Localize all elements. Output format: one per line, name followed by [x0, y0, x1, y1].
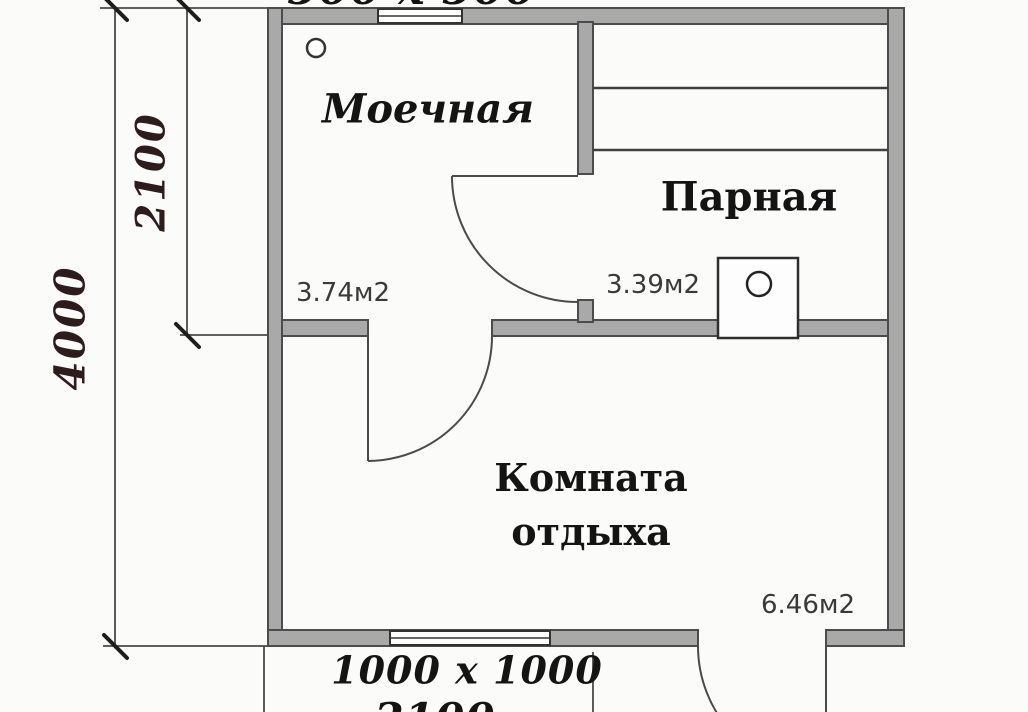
wall-divider-upper: [578, 22, 593, 174]
room-label-rest: Комната отдыха: [494, 451, 688, 559]
floor-plan: 4000 2100 500 х 500 1000 x 1000 2100 Мое…: [0, 0, 1028, 712]
room-label-rest-line1: Комната: [494, 451, 688, 505]
vent-icon: [307, 39, 325, 57]
dimension-label-bottom-width: 2100: [375, 694, 496, 712]
stove-chimney-icon: [747, 272, 771, 296]
area-label-rest: 6.46м2: [761, 590, 855, 620]
wall-right: [888, 8, 904, 646]
door-arc-washing-steam: [452, 176, 578, 302]
wall-interior-horizontal-left: [282, 320, 368, 336]
door-arc-entrance: [698, 646, 826, 712]
room-label-steam: Парная: [661, 174, 837, 221]
dimension-ticks: [104, 0, 199, 658]
dimension-label-2100-left: 2100: [128, 112, 175, 231]
area-label-steam: 3.39м2: [606, 270, 700, 300]
wall-bottom-right-segment: [826, 630, 904, 646]
steam-room-benches: [593, 88, 888, 150]
stove-body: [718, 258, 798, 338]
wall-divider-stub: [578, 300, 593, 322]
room-label-rest-line2: отдыха: [494, 505, 688, 559]
area-label-washing: 3.74м2: [296, 278, 390, 308]
dimension-label-bottom-window: 1000 x 1000: [331, 648, 603, 693]
dimension-label-4000: 4000: [46, 266, 95, 391]
wall-interior-horizontal-right: [492, 320, 888, 336]
dimension-label-top-window: 500 х 500: [287, 0, 537, 15]
room-label-washing: Моечная: [322, 86, 534, 133]
stove: [718, 258, 798, 338]
wall-left: [268, 8, 282, 646]
door-arc-washing-rest: [368, 336, 492, 461]
